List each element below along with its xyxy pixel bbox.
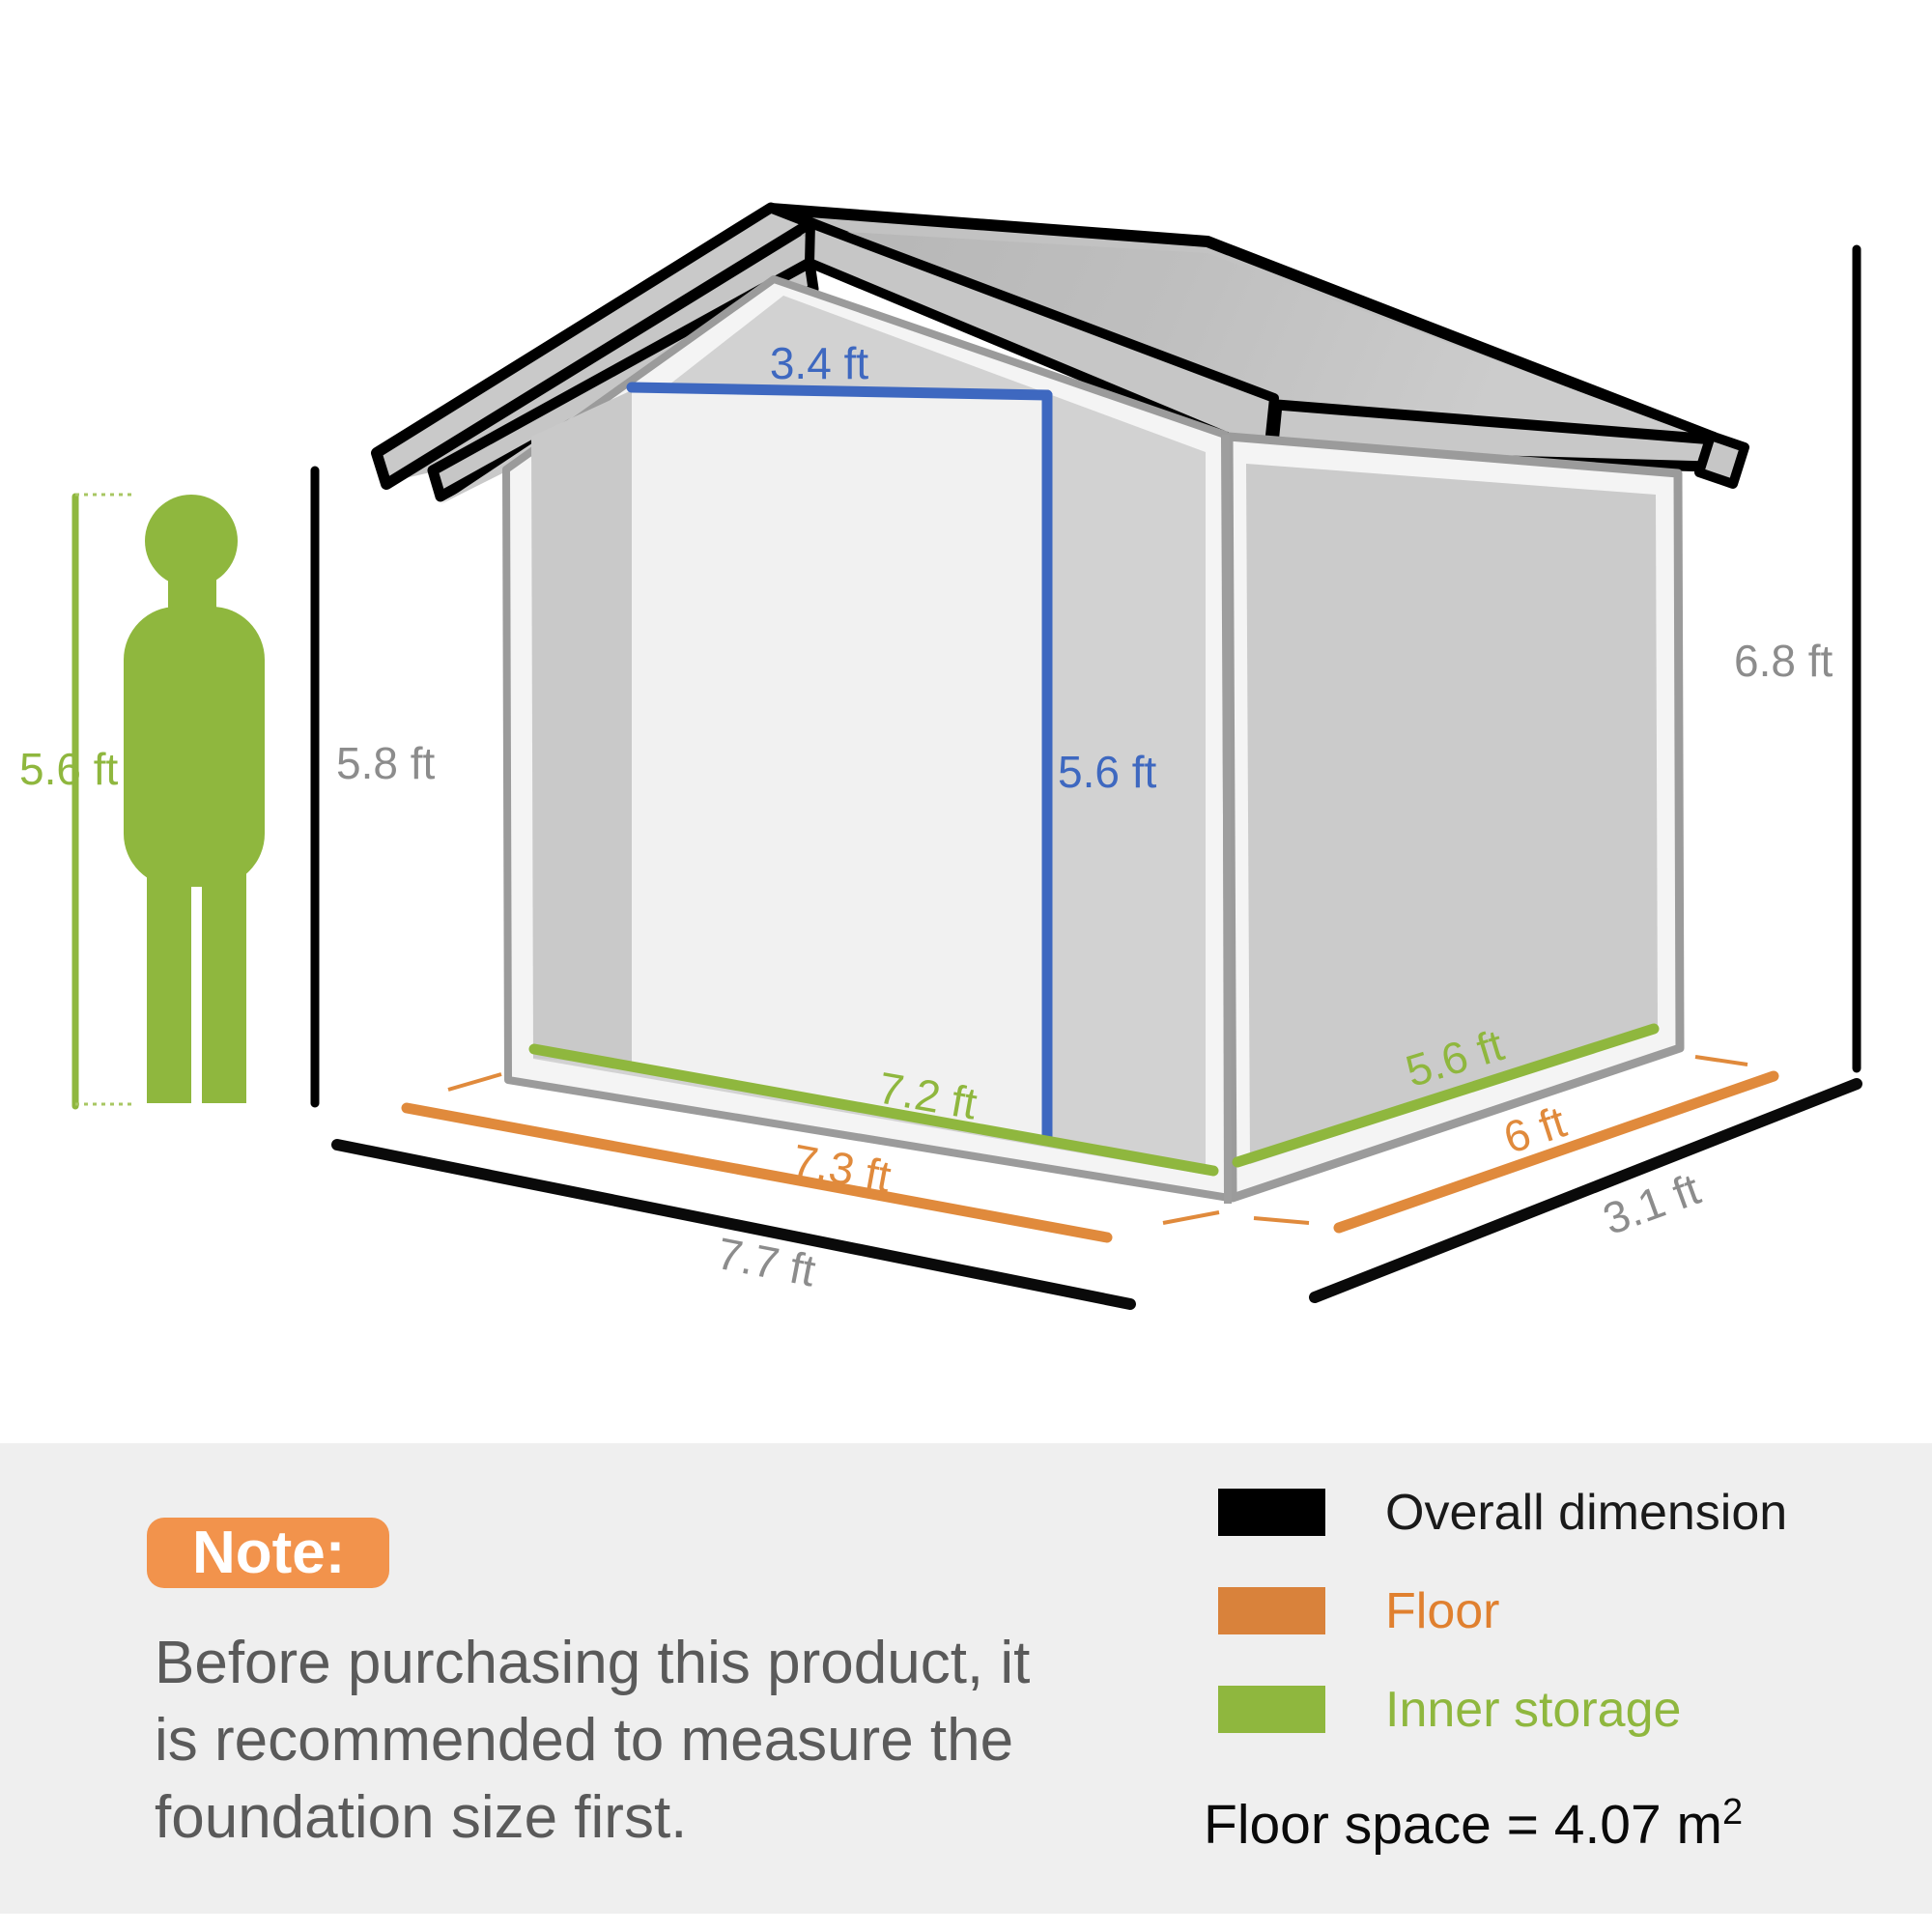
svg-text:Before purchasing this product: Before purchasing this product, it xyxy=(155,1630,1030,1696)
svg-text:Floor space = 4.07 m2: Floor space = 4.07 m2 xyxy=(1204,1792,1743,1856)
svg-text:Note:: Note: xyxy=(192,1520,345,1586)
svg-text:5.6 ft: 5.6 ft xyxy=(1058,747,1157,797)
svg-text:6.8 ft: 6.8 ft xyxy=(1734,636,1833,686)
svg-text:5.6 ft: 5.6 ft xyxy=(19,744,119,794)
svg-text:3.4 ft: 3.4 ft xyxy=(770,338,869,388)
svg-text:foundation size first.: foundation size first. xyxy=(155,1784,687,1851)
svg-text:5.8 ft: 5.8 ft xyxy=(336,738,436,788)
svg-text:Inner storage: Inner storage xyxy=(1385,1682,1681,1738)
svg-text:is recommended to measure the: is recommended to measure the xyxy=(155,1707,1013,1774)
svg-text:Overall dimension: Overall dimension xyxy=(1385,1485,1787,1541)
svg-text:Floor: Floor xyxy=(1385,1583,1499,1639)
